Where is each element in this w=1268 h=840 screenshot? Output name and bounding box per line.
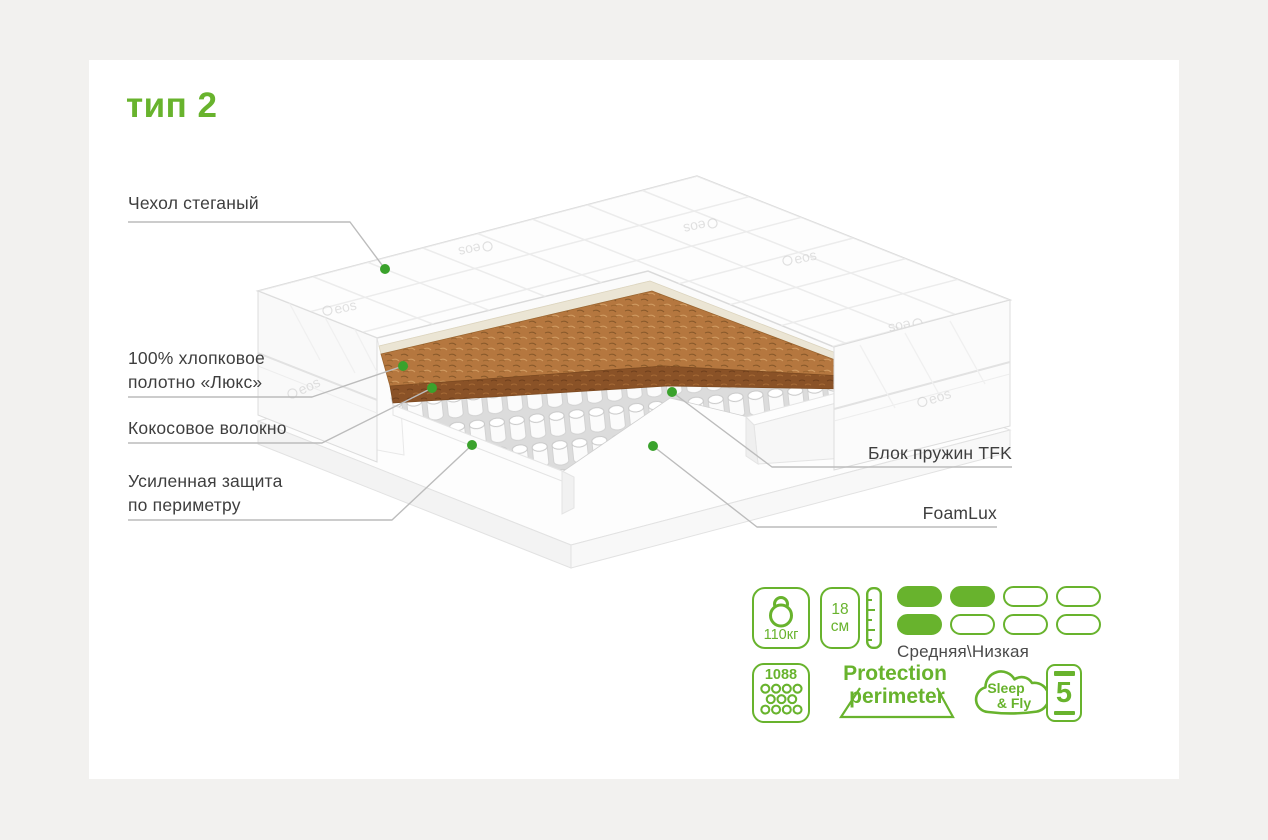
spring-count-value: 1088: [765, 668, 797, 683]
firmness-pill-filled: [897, 614, 942, 635]
firmness-pill-empty: [1056, 614, 1101, 635]
warranty-top-bar: [1054, 671, 1075, 676]
callout-cotton-fabric: 100% хлопковое полотно «Люкс»: [128, 346, 265, 394]
height-unit: см: [831, 618, 849, 635]
perimeter-word: perimeter: [849, 685, 945, 708]
spring-count-badge: 1088: [752, 663, 810, 723]
callout-perimeter-protection: Усиленная защита по периметру: [128, 469, 283, 517]
callout-spring-block: Блок пружин TFK: [868, 441, 1012, 465]
firmness-badge: Средняя\Низкая: [897, 586, 1103, 662]
callout-quilted-cover: Чехол стеганый: [128, 191, 259, 215]
firmness-scale: [897, 586, 1103, 635]
firmness-pill-empty: [1003, 586, 1048, 607]
protection-word: Protection: [843, 662, 947, 685]
firmness-pill-empty: [950, 614, 995, 635]
firmness-pill-empty: [1003, 614, 1048, 635]
firmness-pill-filled: [897, 586, 942, 607]
protection-perimeter-badge: Protection perimeter: [824, 662, 966, 722]
firmness-pill-filled: [950, 586, 995, 607]
kettlebell-icon: [763, 594, 799, 628]
firmness-pill-empty: [1056, 586, 1101, 607]
springs-grid-icon: [754, 683, 808, 721]
brand-line2: & Fly: [997, 695, 1031, 711]
max-weight-value: 110кг: [764, 628, 799, 643]
brand-logo: Sleep & Fly: [968, 660, 1046, 724]
warranty-bottom-bar: [1054, 711, 1075, 716]
callout-foamlux: FoamLux: [923, 501, 997, 525]
callout-coconut-fiber: Кокосовое волокно: [128, 416, 287, 440]
max-weight-badge: 110кг: [752, 587, 810, 649]
warranty-badge: 5: [1046, 664, 1082, 722]
firmness-label: Средняя\Низкая: [897, 642, 1103, 662]
ruler-icon: [866, 587, 882, 649]
height-badge: 18 см: [820, 587, 860, 649]
brand-line1: Sleep: [987, 680, 1024, 696]
height-value: 18: [831, 601, 848, 618]
warranty-years: 5: [1056, 680, 1072, 706]
